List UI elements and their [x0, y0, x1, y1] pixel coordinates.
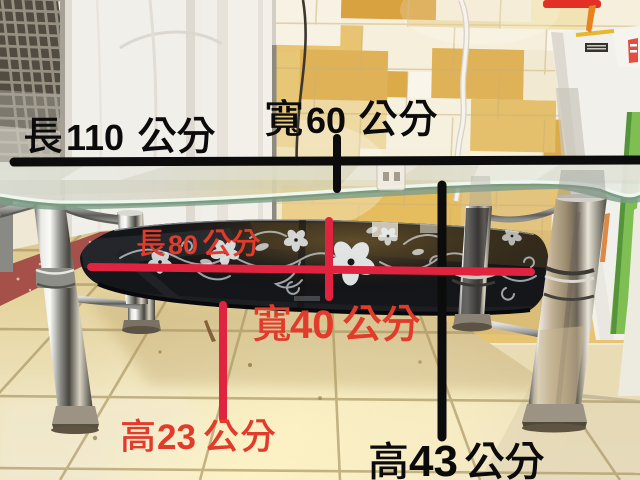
- svg-text:23: 23: [157, 418, 196, 457]
- svg-text:110: 110: [66, 117, 124, 158]
- svg-text:80: 80: [168, 230, 198, 260]
- svg-text:40: 40: [290, 303, 335, 347]
- svg-text:60: 60: [306, 100, 346, 141]
- svg-text:43: 43: [409, 437, 458, 480]
